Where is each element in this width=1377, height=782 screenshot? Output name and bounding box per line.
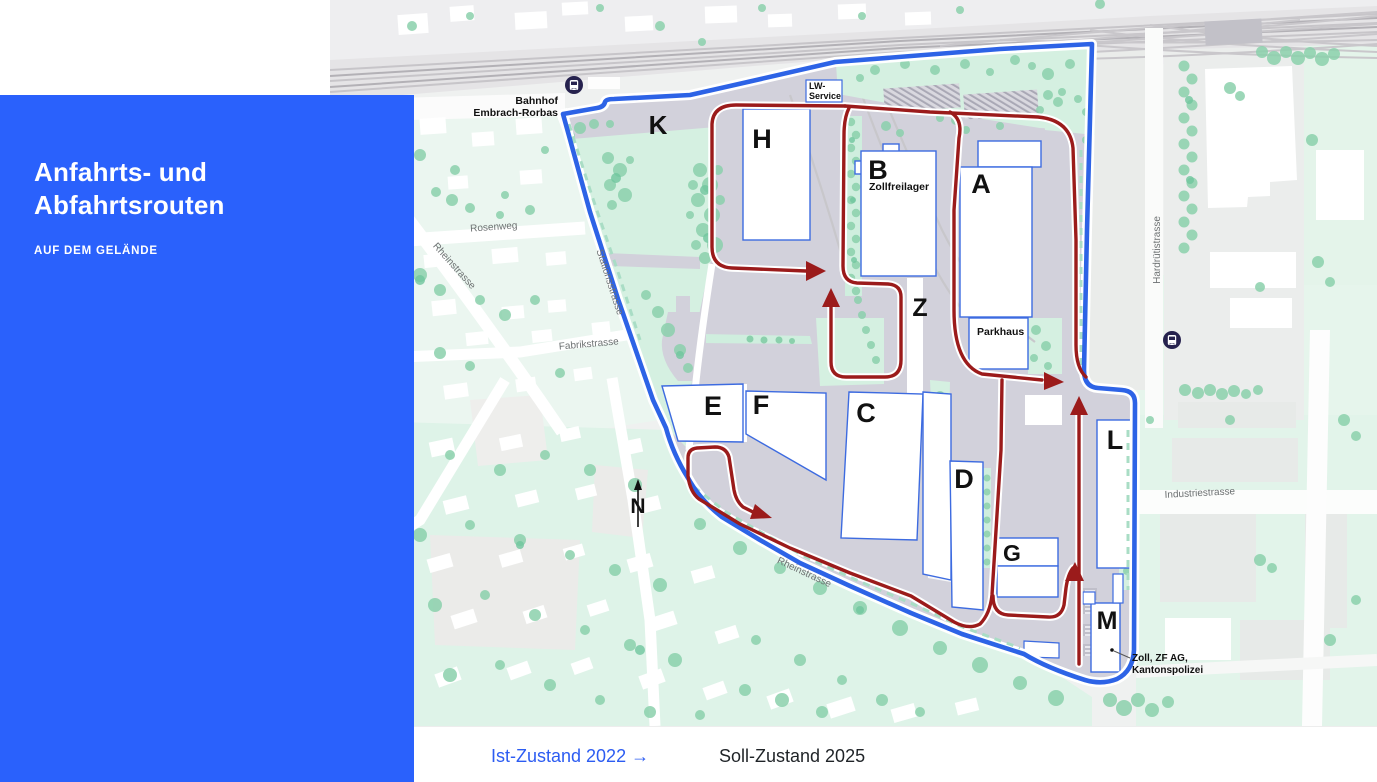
svg-text:Bahnhof: Bahnhof: [515, 95, 558, 107]
svg-text:N: N: [630, 495, 645, 518]
svg-text:LW-: LW-: [809, 81, 825, 91]
svg-text:A: A: [971, 169, 991, 199]
svg-text:Hardrütistrasse: Hardrütistrasse: [1152, 216, 1163, 284]
svg-text:E: E: [704, 391, 722, 421]
svg-text:M: M: [1097, 607, 1118, 635]
svg-text:Service: Service: [809, 91, 841, 101]
svg-text:D: D: [954, 464, 974, 494]
svg-text:Z: Z: [912, 294, 927, 322]
svg-text:Zoll, ZF AG,: Zoll, ZF AG,: [1132, 653, 1188, 664]
svg-text:Kantonspolizei: Kantonspolizei: [1132, 665, 1203, 676]
svg-text:F: F: [753, 390, 770, 420]
svg-text:Parkhaus: Parkhaus: [977, 326, 1024, 338]
svg-text:C: C: [856, 398, 876, 428]
svg-text:Embrach-Rorbas: Embrach-Rorbas: [473, 107, 558, 119]
svg-text:L: L: [1107, 425, 1124, 455]
svg-text:K: K: [649, 110, 668, 140]
svg-text:G: G: [1003, 540, 1021, 566]
svg-text:Zollfreilager: Zollfreilager: [869, 181, 929, 193]
svg-text:H: H: [752, 124, 772, 154]
